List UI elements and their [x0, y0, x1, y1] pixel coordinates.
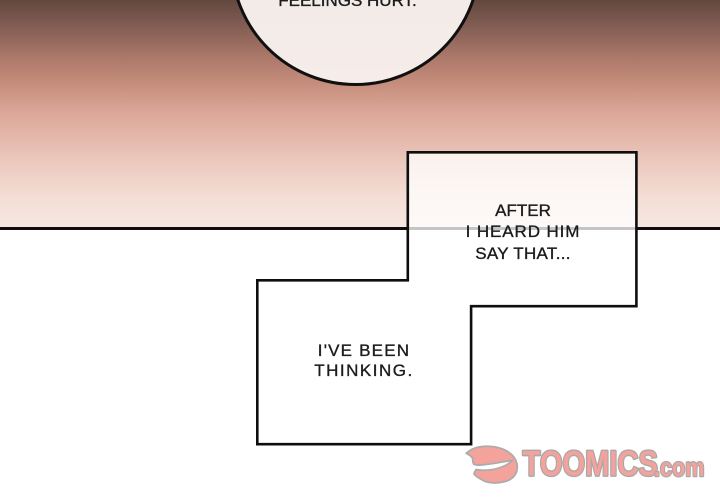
svg-text:.com: .com	[654, 452, 705, 482]
svg-text:TOOMICS: TOOMICS	[523, 443, 658, 483]
